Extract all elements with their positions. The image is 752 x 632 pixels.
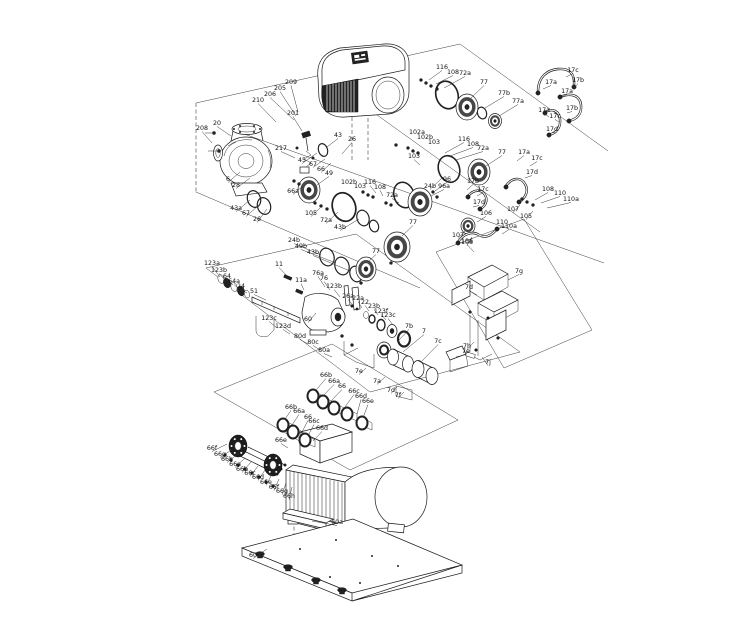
leader-line bbox=[334, 290, 340, 298]
hardware-bit bbox=[362, 191, 365, 194]
leader-line bbox=[486, 156, 502, 167]
leader-line bbox=[292, 415, 299, 426]
leader-line bbox=[485, 97, 504, 109]
leader-line bbox=[363, 405, 368, 419]
o-ring bbox=[329, 190, 360, 225]
part-label: 77 bbox=[409, 219, 417, 226]
leader-line bbox=[477, 217, 486, 223]
hardware-bit bbox=[298, 183, 301, 186]
part-label: 67 bbox=[242, 210, 250, 217]
leader-line bbox=[517, 156, 524, 162]
part-label: 45 bbox=[298, 157, 306, 164]
part-label: 107 bbox=[507, 206, 519, 213]
leader-line bbox=[450, 148, 473, 157]
part-label: 7a bbox=[373, 378, 381, 385]
leader-line bbox=[357, 400, 361, 415]
part-label: 106 bbox=[461, 238, 473, 245]
diagram-canvas: 2092052062102012020821762843264567664966… bbox=[0, 0, 752, 632]
part-label: 217 bbox=[275, 145, 287, 152]
hardware-bit bbox=[372, 196, 375, 199]
leader-line bbox=[327, 139, 338, 148]
part-label: 66c bbox=[308, 418, 320, 425]
part-label: 66d bbox=[316, 425, 328, 432]
leader-line bbox=[530, 162, 537, 167]
seal-disc bbox=[408, 188, 432, 216]
part-label: 77 bbox=[372, 248, 380, 255]
part-label: 110a bbox=[563, 196, 579, 203]
part-label: 17b bbox=[572, 77, 584, 84]
part-label: 26 bbox=[253, 216, 261, 223]
pipe bbox=[506, 179, 527, 202]
leader-line bbox=[323, 385, 334, 397]
leader-line bbox=[301, 284, 304, 291]
leader-line bbox=[281, 152, 295, 159]
pipe-nut bbox=[547, 133, 551, 137]
leader-line bbox=[285, 411, 291, 420]
part-label: 76 bbox=[320, 275, 328, 282]
part-label: 7f bbox=[395, 392, 402, 399]
o-ring bbox=[368, 219, 380, 233]
leader-line bbox=[421, 345, 438, 363]
hardware-bit bbox=[367, 194, 370, 197]
part-label: 123c bbox=[380, 312, 396, 319]
part-label: 17b bbox=[566, 105, 578, 112]
part-label: 80d bbox=[294, 333, 306, 340]
motor-top bbox=[318, 44, 409, 117]
part-label: 60 bbox=[249, 552, 257, 559]
hardware-bit bbox=[436, 88, 439, 91]
pipe-nut bbox=[466, 195, 470, 199]
part-label: 123d bbox=[275, 323, 291, 330]
part-label: 6 bbox=[226, 176, 230, 183]
motor-display bbox=[351, 51, 368, 64]
part-label: 201 bbox=[287, 110, 299, 117]
leader-line bbox=[402, 226, 413, 237]
hardware-bit bbox=[395, 144, 398, 147]
seal-disc bbox=[384, 232, 410, 262]
leader-line bbox=[283, 330, 290, 335]
part-label: 17d bbox=[526, 169, 538, 176]
part-label: 43b bbox=[334, 224, 346, 231]
pipe-nut bbox=[567, 119, 571, 123]
hardware-bit bbox=[390, 204, 393, 207]
hardware-bit bbox=[521, 198, 524, 201]
part-label: 24b bbox=[424, 183, 436, 190]
part-label: 43b bbox=[307, 249, 319, 256]
leader-line bbox=[429, 71, 442, 81]
hardware-bit bbox=[407, 147, 410, 150]
bearing-flange bbox=[264, 454, 282, 476]
hardware-bit bbox=[526, 201, 529, 204]
part-label: 206 bbox=[264, 91, 276, 98]
part-label: 7d bbox=[387, 387, 395, 394]
leader-line bbox=[342, 143, 352, 155]
part-label: 43a bbox=[230, 205, 242, 212]
part-label: 80c bbox=[307, 339, 319, 346]
part-label: 49 bbox=[325, 170, 333, 177]
leader-line bbox=[380, 191, 383, 197]
hardware-bit bbox=[385, 202, 388, 205]
part-label: 96a bbox=[438, 183, 450, 190]
part-label: 17d bbox=[473, 199, 485, 206]
leader-line bbox=[414, 160, 420, 166]
part-label: 26 bbox=[348, 136, 356, 143]
leader-line bbox=[293, 117, 302, 132]
part-label: 210 bbox=[252, 97, 264, 104]
part-label: 108 bbox=[542, 186, 554, 193]
union-fitting bbox=[341, 407, 357, 422]
part-label: 17a bbox=[561, 88, 573, 95]
part-label: 77b bbox=[498, 90, 510, 97]
leader-line bbox=[331, 390, 342, 402]
leader-line bbox=[445, 143, 464, 154]
hardware-bit bbox=[436, 196, 439, 199]
part-label: 108 bbox=[447, 69, 459, 76]
leader-line bbox=[543, 86, 551, 90]
leader-line bbox=[279, 268, 287, 277]
part-label: 66 bbox=[338, 383, 346, 390]
leader-line bbox=[508, 275, 519, 281]
part-label: 49b bbox=[295, 243, 307, 250]
part-label: 72a bbox=[477, 145, 489, 152]
leader-line bbox=[499, 105, 518, 117]
hardware-bit bbox=[390, 262, 393, 265]
part-label: 80a bbox=[318, 347, 330, 354]
part-label: 7b bbox=[405, 323, 413, 330]
part-label: 17b bbox=[467, 178, 479, 185]
hardware-bit bbox=[326, 208, 329, 211]
part-label: 66h bbox=[283, 493, 295, 500]
part-label: 103 bbox=[408, 153, 420, 160]
part-label: 11 bbox=[275, 261, 283, 268]
seal-disc bbox=[298, 177, 320, 203]
part-label: 17c bbox=[567, 67, 579, 74]
part-label: 7 bbox=[422, 328, 426, 335]
pipe-nut bbox=[495, 227, 499, 231]
part-label: 17c bbox=[549, 113, 561, 120]
hardware-bit bbox=[320, 205, 323, 208]
part-label: 77a bbox=[512, 98, 524, 105]
part-label: 17c bbox=[531, 155, 543, 162]
hardware-bit bbox=[532, 204, 535, 207]
hardware-bit bbox=[314, 202, 317, 205]
part-label: 72a bbox=[459, 70, 471, 77]
o-ring bbox=[355, 209, 371, 228]
part-label: 51 bbox=[250, 288, 258, 295]
part-label: 66a bbox=[287, 188, 299, 195]
hardware-bit bbox=[430, 85, 433, 88]
part-label: 24 bbox=[237, 283, 245, 290]
part-label: 66e bbox=[362, 398, 374, 405]
part-label: 7j bbox=[485, 359, 491, 366]
part-label: 7e bbox=[462, 348, 470, 355]
part-label: 72a bbox=[386, 192, 398, 199]
leader-line bbox=[324, 354, 332, 358]
part-label: 77 bbox=[498, 149, 506, 156]
part-label: 11a bbox=[295, 277, 307, 284]
hardware-bit bbox=[432, 191, 435, 194]
part-label: 96 bbox=[443, 176, 451, 183]
part-label: 106 bbox=[480, 210, 492, 217]
pipe-nut bbox=[536, 91, 540, 95]
part-label: 60a bbox=[331, 519, 343, 526]
leader-line bbox=[502, 230, 509, 235]
part-label: 7d bbox=[465, 284, 473, 291]
part-label: 72a bbox=[320, 217, 332, 224]
generated-parts-layer bbox=[224, 69, 582, 488]
leader-line bbox=[316, 379, 326, 391]
pipe-nut bbox=[517, 200, 521, 204]
part-label: 17c bbox=[477, 186, 489, 193]
exploded-parts-diagram: 2092052062102012020821762843264567664966… bbox=[0, 0, 752, 632]
part-label: 123c bbox=[261, 315, 277, 322]
hardware-bit bbox=[293, 180, 296, 183]
part-label: 77 bbox=[480, 79, 488, 86]
part-label: 108 bbox=[374, 184, 386, 191]
hardware-bit bbox=[425, 82, 428, 85]
leader-line bbox=[477, 193, 483, 197]
leader-line bbox=[467, 185, 473, 191]
leader-line bbox=[291, 86, 298, 113]
part-label: 43 bbox=[334, 132, 342, 139]
part-label: 20 bbox=[213, 120, 221, 127]
leader-line bbox=[281, 444, 288, 449]
part-label: 7c bbox=[434, 338, 442, 345]
pipe-nut bbox=[504, 185, 508, 189]
leader-line bbox=[388, 319, 393, 326]
hardware-bit bbox=[360, 282, 363, 285]
leader-line bbox=[547, 203, 571, 209]
part-label: 66 bbox=[317, 166, 325, 173]
leader-line bbox=[471, 86, 484, 99]
base-plate bbox=[242, 519, 462, 601]
leader-line bbox=[535, 193, 548, 201]
o-ring bbox=[317, 142, 330, 157]
part-label: 103 bbox=[428, 139, 440, 146]
o-ring bbox=[333, 255, 352, 276]
union-fitting bbox=[356, 416, 372, 431]
part-label: 67 bbox=[309, 161, 317, 168]
pipe-nut bbox=[456, 241, 460, 245]
leader-line bbox=[217, 127, 231, 137]
seal-disc bbox=[356, 257, 376, 281]
part-label: 28 bbox=[232, 182, 240, 189]
part-label: 105 bbox=[305, 210, 317, 217]
part-label: 209 bbox=[285, 79, 297, 86]
leader-line bbox=[541, 197, 560, 204]
leader-line bbox=[403, 335, 424, 353]
part-label: 17a bbox=[545, 79, 557, 86]
leader-line bbox=[317, 177, 329, 186]
part-label: 7e bbox=[355, 368, 363, 375]
part-label: 17d bbox=[546, 126, 558, 133]
part-label: 60 bbox=[304, 316, 312, 323]
part-label: 105 bbox=[520, 213, 532, 220]
part-label: 123b bbox=[326, 283, 342, 290]
seal-disc bbox=[456, 94, 478, 120]
part-label: 208 bbox=[196, 125, 208, 132]
leader-line bbox=[345, 395, 354, 408]
part-label: 7g bbox=[515, 268, 523, 275]
part-label: 110a bbox=[501, 223, 517, 230]
part-label: 123a bbox=[204, 260, 220, 267]
leader-line bbox=[258, 104, 276, 123]
part-label: 66e bbox=[275, 437, 287, 444]
hardware-bit bbox=[420, 79, 423, 82]
part-label: 17a bbox=[518, 149, 530, 156]
